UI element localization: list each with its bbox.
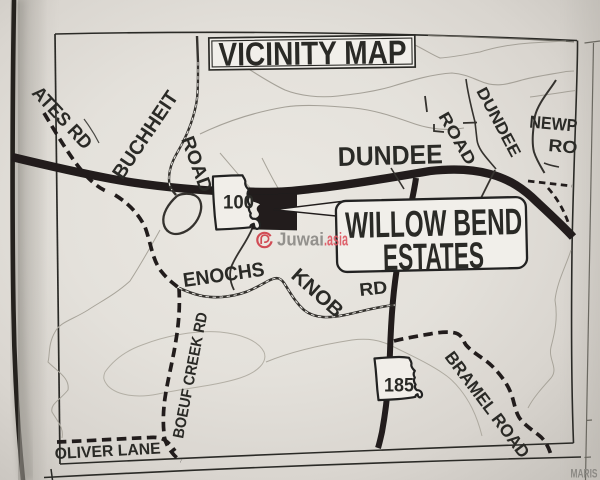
svg-text:100: 100 [223, 192, 254, 214]
svg-text:RD: RD [358, 277, 388, 300]
svg-text:ESTATES: ESTATES [383, 235, 485, 278]
svg-text:VICINITY MAP: VICINITY MAP [218, 33, 406, 73]
svg-text:DUNDEE: DUNDEE [337, 139, 443, 172]
svg-text:MARIS: MARIS [571, 467, 598, 480]
svg-text:RO: RO [548, 135, 579, 157]
svg-text:NEWP: NEWP [529, 112, 579, 136]
svg-text:.asia: .asia [324, 229, 348, 250]
svg-text:185: 185 [384, 375, 414, 397]
svg-text:Juwai: Juwai [277, 229, 324, 250]
